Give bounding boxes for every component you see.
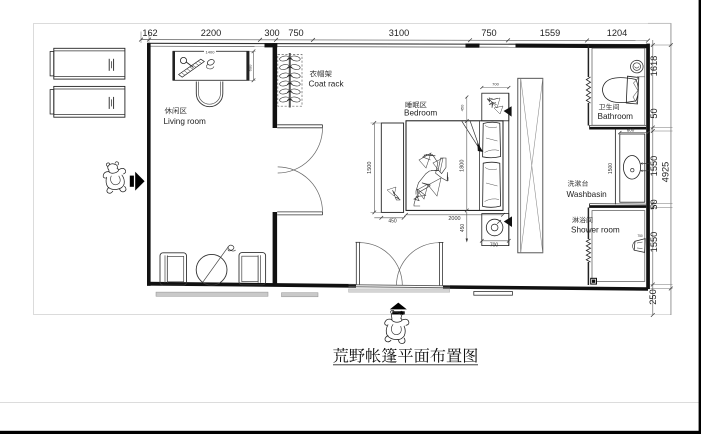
svg-text:600: 600 bbox=[627, 127, 635, 132]
svg-text:750: 750 bbox=[481, 28, 496, 38]
svg-text:600: 600 bbox=[248, 64, 253, 71]
svg-text:450: 450 bbox=[388, 219, 397, 225]
svg-text:Shower room: Shower room bbox=[571, 226, 620, 235]
svg-text:750: 750 bbox=[637, 234, 643, 238]
svg-text:1800: 1800 bbox=[459, 160, 465, 172]
svg-text:750: 750 bbox=[288, 28, 303, 38]
svg-text:2000: 2000 bbox=[448, 216, 460, 222]
svg-text:450: 450 bbox=[460, 104, 465, 111]
svg-text:4925: 4925 bbox=[661, 162, 671, 183]
svg-text:700: 700 bbox=[490, 242, 499, 248]
svg-text:300: 300 bbox=[264, 28, 279, 38]
svg-text:2200: 2200 bbox=[201, 28, 221, 38]
svg-text:Bedroom: Bedroom bbox=[404, 108, 437, 117]
svg-text:1400: 1400 bbox=[206, 49, 216, 54]
svg-text:1550: 1550 bbox=[649, 156, 659, 177]
svg-text:1559: 1559 bbox=[540, 28, 560, 38]
svg-text:700: 700 bbox=[492, 82, 499, 87]
svg-text:Coat rack: Coat rack bbox=[309, 80, 345, 89]
svg-text:162: 162 bbox=[142, 28, 157, 38]
svg-text:1500: 1500 bbox=[608, 163, 614, 174]
svg-text:250: 250 bbox=[648, 289, 658, 305]
svg-text:Washbasin: Washbasin bbox=[567, 190, 608, 199]
svg-text:1204: 1204 bbox=[607, 28, 627, 38]
svg-text:50: 50 bbox=[649, 199, 659, 209]
svg-text:1550: 1550 bbox=[649, 232, 659, 253]
svg-text:450: 450 bbox=[460, 224, 466, 233]
svg-text:1618: 1618 bbox=[649, 56, 659, 77]
svg-text:Living room: Living room bbox=[164, 117, 207, 126]
svg-text:Bathroom: Bathroom bbox=[598, 112, 634, 121]
svg-text:1500: 1500 bbox=[367, 162, 373, 174]
svg-text:3100: 3100 bbox=[389, 28, 409, 38]
svg-text:50: 50 bbox=[649, 108, 659, 118]
